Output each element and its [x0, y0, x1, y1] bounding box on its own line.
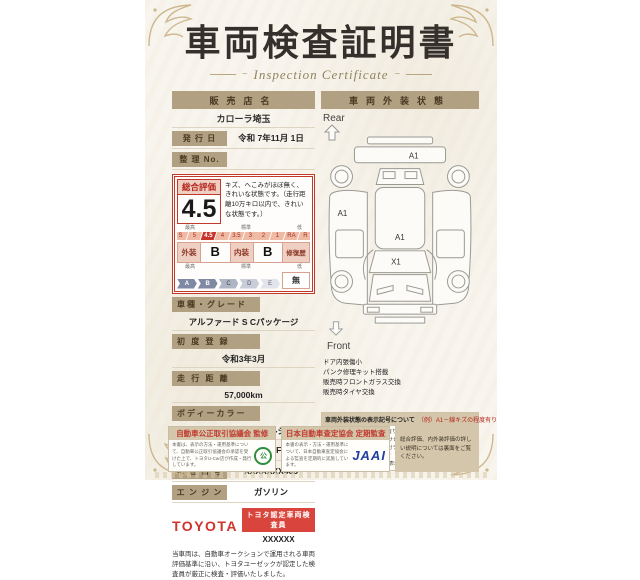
note-item: パンク修理キット搭載 [323, 368, 479, 378]
fair-trade-text: 本書は、表示の方法・運用基準について、自動車公正取引協議会の承認を受けた上で、ト… [172, 442, 251, 469]
condition-notes: ドア内張傷小 パンク修理キット搭載 販売時フロントガラス交換 販売時タイヤ交換 [323, 358, 479, 398]
dealer-header: 販売店名 [172, 91, 315, 109]
grade-chevron: E [260, 279, 280, 289]
note-item: 販売時タイヤ交換 [323, 388, 479, 398]
inspector-id: XXXXXX [242, 532, 315, 544]
grade-scale-row: A B C D E 無 [177, 272, 310, 289]
content-columns: 販売店名 カローラ埼玉 発 行 日 令和 7年11月 1日 整 理 No. 総合… [172, 91, 479, 427]
rear-bumper [354, 146, 445, 162]
interior-grade-value: B [254, 243, 284, 261]
score-value: 4.5 [178, 195, 220, 224]
grade-chevron: B [198, 279, 218, 289]
score-label: 総合評価 [178, 180, 220, 195]
marker-roof: A1 [395, 233, 405, 242]
legend-example: （例）A1－線キズの程度有り [418, 418, 497, 424]
arrow-down-icon [327, 320, 345, 336]
field-label: 車種・グレード [172, 297, 260, 312]
exterior-header: 車両外装状態 [321, 91, 479, 109]
right-fog-area [421, 307, 433, 312]
issue-date-value: 令和 7年11月 1日 [227, 132, 315, 144]
grades-row: 外装 B 内装 B 修復歴 [177, 242, 310, 262]
inspection-disclaimer: 当車両は、自動車オークションで運用される車両評価基準に沿い、トヨタユーゼックが認… [172, 550, 315, 580]
rating-comment: キズ、へこみがほぼ無く、きれいな状態です。（走行距離10万キロ以内で、きれいな状… [223, 179, 310, 225]
scale-segment: R [298, 232, 310, 240]
field-label: 初 度 登 録 [172, 334, 260, 349]
see-reverse-note: 総合評価、内外装評価の詳しい説明については裏面をご覧ください。 [395, 426, 479, 472]
ref-no-label: 整 理 No. [172, 152, 227, 167]
exterior-grade-value: B [201, 243, 231, 261]
field-label: エ ン ジ ン [172, 485, 227, 500]
field-first-registration: 初 度 登 録 令和3年3月 [172, 334, 315, 368]
legend-header: 車両外装状態の表示記号について（例）A1－線キズの程度有り [322, 413, 478, 426]
scale-label-low: 低 [297, 226, 302, 231]
headrest [383, 171, 395, 178]
front-label: Front [327, 341, 479, 352]
corner-flourish-icon [449, 2, 495, 48]
note-item: 販売時フロントガラス交換 [323, 378, 479, 388]
field-mileage: 走 行 距 離 57,000km [172, 371, 315, 403]
dealer-name: カローラ埼玉 [172, 109, 315, 128]
page-subtitle: Inspection Certificate [253, 67, 388, 83]
ref-no-row: 整 理 No. [172, 152, 315, 170]
toyota-section: TOYOTA トヨタ認定車両検査員 XXXXXX [172, 508, 315, 544]
toyota-logo: TOYOTA [172, 518, 238, 534]
scale-labels: 最高 標準 低 [177, 224, 310, 231]
grade-chevron: D [239, 279, 259, 289]
fair-trade-header: 自動車公正取引協議会 監修 [169, 427, 275, 440]
repair-history-label: 修復歴 [283, 243, 309, 261]
field-label: 走 行 距 離 [172, 371, 260, 386]
scale-label-mid: 標準 [241, 226, 251, 231]
front-face [369, 274, 430, 301]
rear-label: Rear [323, 113, 479, 124]
jaai-text: 本書の表示・方法・運用基準について、日本自動車査定協会による監査を定期的に実施し… [285, 442, 349, 469]
field-model-grade: 車種・グレード アルファード S Cパッケージ [172, 297, 315, 331]
flourish-line [406, 74, 432, 75]
interior-grade-label: 内装 [231, 243, 254, 261]
grade-chevron: C [219, 279, 239, 289]
vehicle-info-column: 販売店名 カローラ埼玉 発 行 日 令和 7年11月 1日 整 理 No. 総合… [172, 91, 315, 427]
grade-scale-labels: 最高 標準 低 [177, 263, 310, 270]
subtitle-row: ~ Inspection Certificate ~ [145, 67, 497, 83]
jaai-header: 日本自動車査定協会 定期監査 [282, 427, 388, 440]
jaai-logo: JAAI [352, 448, 386, 463]
field-value: 令和3年3月 [172, 349, 315, 368]
issue-date-label: 発 行 日 [172, 131, 227, 146]
overall-rating-box: 総合評価 4.5 キズ、へこみがほぼ無く、きれいな状態です。（走行距離10万キロ… [172, 174, 315, 294]
marker-left-side: A1 [338, 209, 348, 218]
inspector-badge: トヨタ認定車両検査員 [242, 508, 315, 532]
grade-chevron: A [177, 279, 197, 289]
exterior-condition-column: 車両外装状態 Rear [321, 91, 479, 427]
fair-trade-seal-icon: 公 [254, 447, 272, 465]
issue-date-row: 発 行 日 令和 7年11月 1日 [172, 131, 315, 149]
marker-rear-bumper: A1 [409, 151, 419, 160]
scale-label-high: 最高 [185, 226, 195, 231]
grade-label-mid: 標準 [241, 265, 251, 270]
front-lip [375, 317, 425, 323]
flourish-tilde: ~ [395, 69, 401, 80]
exterior-grade-label: 外装 [178, 243, 201, 261]
grade-label-low: 低 [297, 265, 302, 270]
flourish-tilde: ~ [242, 69, 248, 80]
rating-scale: S 5 4.5 4 3.5 3 2 1 RA R [177, 232, 310, 240]
car-diagram: A1 A1 A1 X1 [321, 133, 479, 336]
rear-garnish [367, 137, 432, 144]
certificate-page: 車両検査証明書 ~ Inspection Certificate ~ 販売店名 … [145, 0, 497, 480]
right-window [437, 230, 465, 258]
fair-trade-box: 自動車公正取引協議会 監修 本書は、表示の方法・運用基準について、自動車公正取引… [168, 426, 276, 472]
field-label: ボディーカラー [172, 406, 260, 421]
legend-title: 車両外装状態の表示記号について [325, 418, 415, 424]
note-item: ドア内張傷小 [323, 358, 479, 368]
bottom-lace-border [155, 472, 487, 478]
marker-windshield: X1 [391, 257, 401, 266]
field-value: アルファード S Cパッケージ [172, 312, 315, 331]
left-window [336, 230, 364, 258]
page-title: 車両検査証明書 [145, 24, 497, 64]
footer: 自動車公正取引協議会 監修 本書は、表示の方法・運用基準について、自動車公正取引… [168, 426, 479, 472]
jaai-box: 日本自動車査定協会 定期監査 本書の表示・方法・運用基準について、日本自動車査定… [281, 426, 389, 472]
field-value: 57,000km [172, 386, 315, 403]
corner-flourish-icon [147, 2, 193, 48]
headrest [405, 171, 417, 178]
flourish-line [210, 74, 236, 75]
repair-history-value: 無 [282, 272, 310, 289]
field-engine: エ ン ジ ン ガソリン [172, 485, 315, 503]
left-fog-area [367, 307, 379, 312]
field-value: ガソリン [227, 486, 315, 498]
grade-label-high: 最高 [185, 265, 195, 270]
score-box: 総合評価 4.5 [177, 179, 221, 225]
